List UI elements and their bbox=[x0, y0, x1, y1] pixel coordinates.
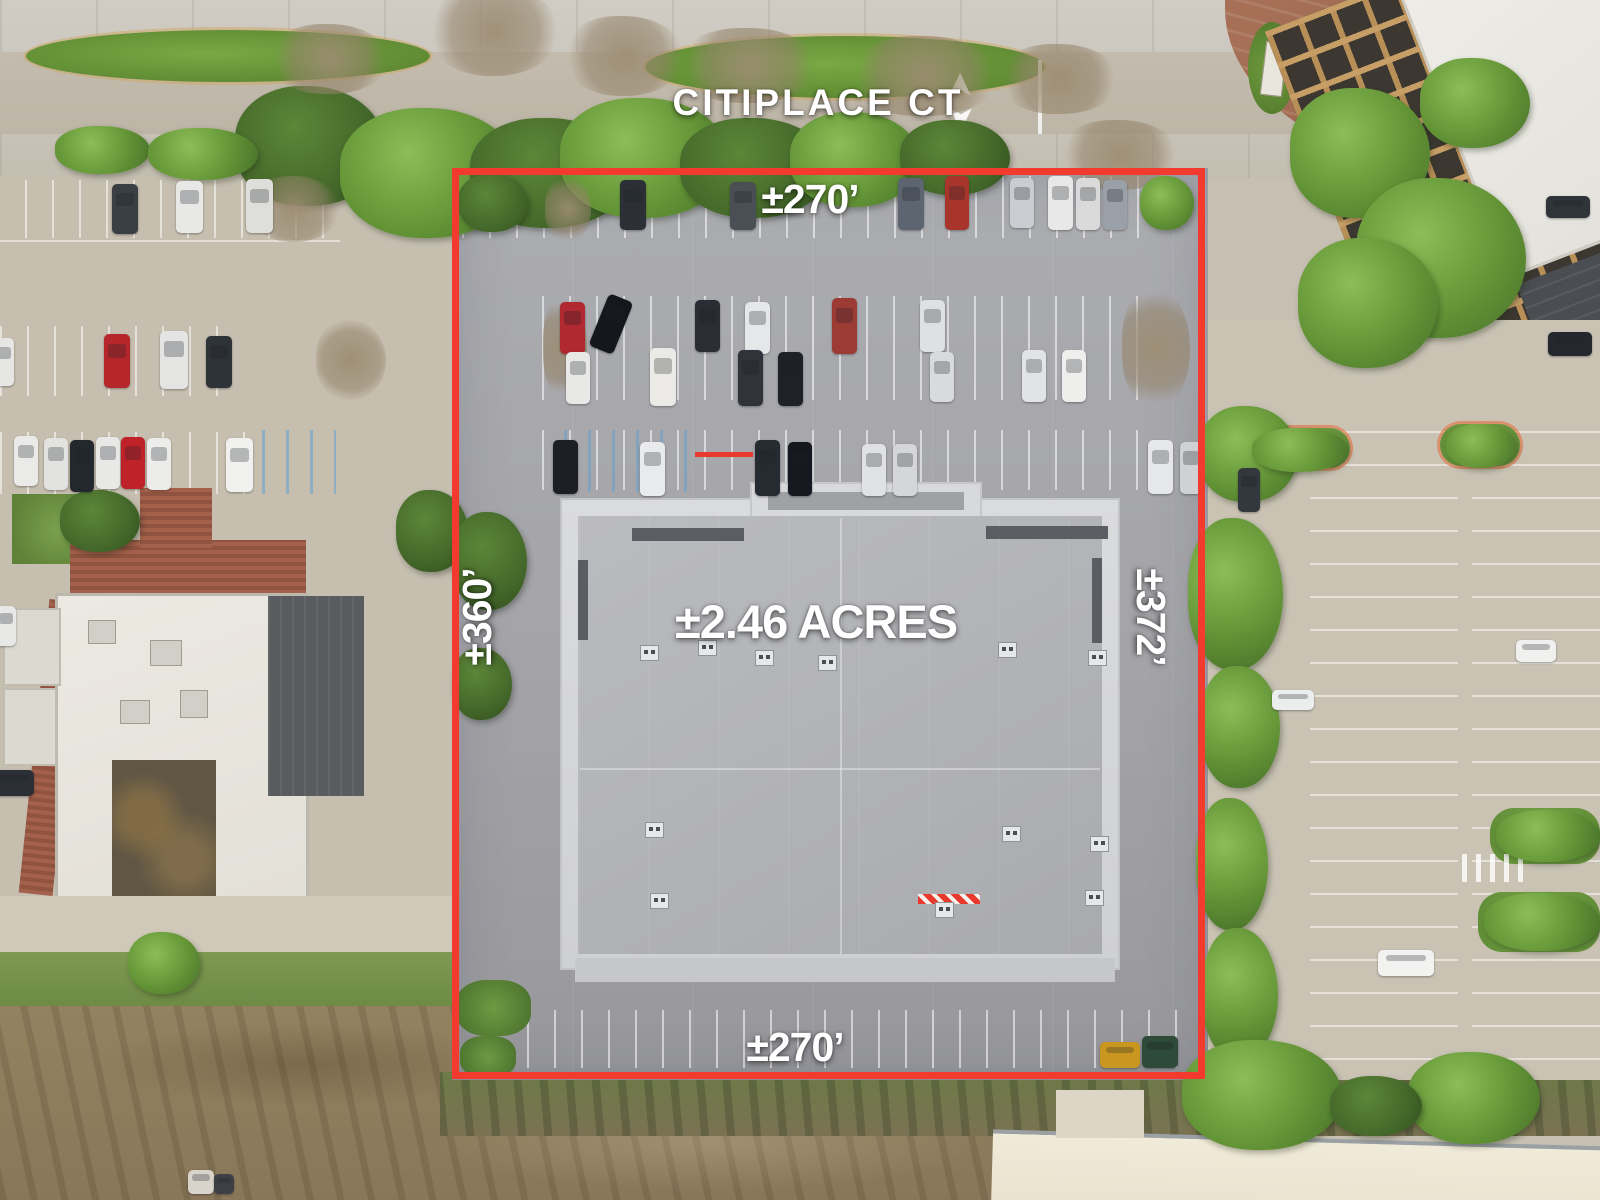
dimension-label-right: ±372’ bbox=[1128, 517, 1174, 717]
dimension-label-left: ±360’ bbox=[454, 517, 500, 717]
car bbox=[112, 184, 138, 234]
car bbox=[206, 336, 232, 388]
tree bbox=[1420, 58, 1530, 148]
car bbox=[121, 437, 145, 489]
tree bbox=[1182, 1040, 1342, 1150]
car bbox=[226, 438, 253, 492]
car bbox=[14, 436, 38, 486]
courtyard bbox=[112, 760, 216, 902]
tree bbox=[55, 126, 150, 174]
car bbox=[0, 338, 14, 386]
car bbox=[104, 334, 130, 388]
roadside-grass bbox=[0, 952, 460, 1013]
car bbox=[44, 438, 68, 490]
tree bbox=[1200, 666, 1280, 788]
car bbox=[1548, 332, 1592, 356]
car bbox=[70, 440, 94, 492]
tree bbox=[270, 24, 390, 94]
tree bbox=[1446, 424, 1516, 468]
rooftop-unit bbox=[150, 640, 182, 666]
dimension-label-bottom: ±270’ bbox=[695, 1024, 895, 1071]
annex-roof bbox=[5, 690, 55, 764]
car bbox=[1546, 196, 1590, 218]
concrete-pad bbox=[1056, 1090, 1144, 1138]
tree bbox=[316, 320, 386, 400]
car bbox=[147, 438, 171, 490]
rooftop-unit bbox=[120, 700, 150, 724]
driveway bbox=[0, 896, 456, 958]
tree bbox=[1484, 893, 1600, 951]
tile-roof-section bbox=[140, 488, 212, 548]
tree bbox=[1298, 238, 1438, 368]
handicap-stalls bbox=[262, 430, 336, 494]
rooftop-unit bbox=[180, 690, 208, 718]
car bbox=[246, 179, 273, 233]
car bbox=[1516, 640, 1556, 662]
tree bbox=[1252, 428, 1348, 472]
tree bbox=[128, 932, 200, 994]
car bbox=[0, 606, 16, 646]
parking-stripes bbox=[1472, 415, 1600, 1060]
car bbox=[176, 181, 203, 233]
car bbox=[0, 770, 34, 796]
tree bbox=[1496, 810, 1600, 862]
tree bbox=[1330, 1076, 1422, 1136]
car bbox=[96, 437, 120, 489]
aerial-photo: ➤ ➤ bbox=[0, 0, 1600, 1200]
tree bbox=[60, 490, 140, 552]
left-building-dark-roof bbox=[268, 596, 364, 796]
street-label: CITIPLACE CT bbox=[618, 82, 1018, 124]
car bbox=[1238, 468, 1260, 512]
area-label: ±2.46 ACRES bbox=[616, 594, 1016, 649]
tree bbox=[148, 128, 258, 180]
car bbox=[188, 1170, 214, 1194]
rooftop-unit bbox=[88, 620, 116, 644]
car bbox=[1272, 690, 1314, 710]
tree bbox=[1196, 798, 1268, 930]
tree bbox=[1408, 1052, 1540, 1144]
car bbox=[1378, 950, 1434, 976]
tree bbox=[1000, 44, 1120, 114]
car bbox=[160, 331, 188, 389]
dimension-label-top: ±270’ bbox=[710, 176, 910, 223]
car bbox=[214, 1174, 234, 1194]
